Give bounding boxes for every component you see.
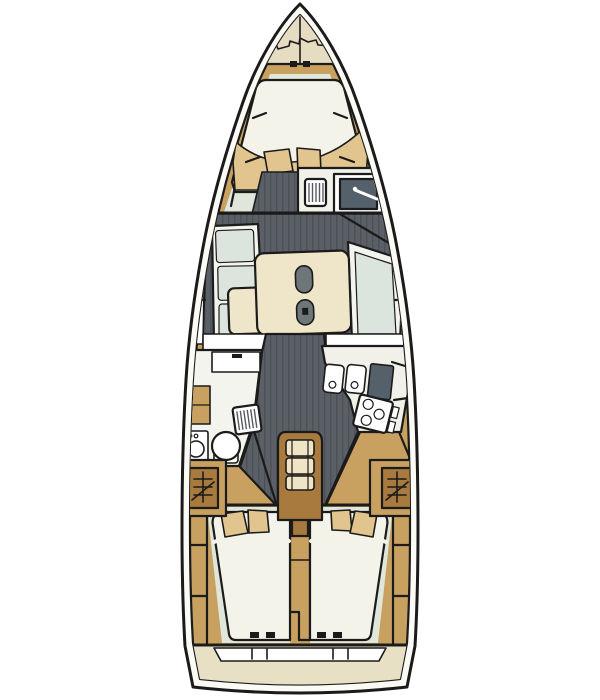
interior [182, 12, 414, 686]
port-cabinet-front [203, 334, 266, 350]
forward-head-grate [305, 179, 326, 206]
yacht-deck-plan [0, 0, 600, 700]
aft-pillow [331, 510, 352, 531]
berth-latch [266, 632, 275, 638]
companionway-steps [278, 432, 322, 536]
sink-drain [329, 381, 336, 388]
berth-latch [250, 632, 259, 638]
step-tread [286, 458, 314, 474]
windlass-fitting [303, 61, 310, 67]
grate-frame [232, 404, 262, 434]
berth-latch [333, 632, 342, 638]
deck-plan-svg [0, 0, 600, 700]
swim-step-band [214, 648, 386, 661]
vanity-faucet [232, 354, 242, 358]
toilet [212, 432, 240, 463]
galley-worktop [367, 364, 393, 400]
v-berth-pillow [264, 149, 293, 174]
sink-basin [340, 179, 377, 209]
sink-drain [351, 381, 358, 388]
step-tread [286, 440, 314, 456]
aft-pillow [248, 510, 269, 533]
starboard-hanging-locker [370, 460, 414, 516]
starboard-cabinet-front [326, 334, 406, 346]
toilet-bowl [212, 432, 240, 460]
galley-sink [345, 364, 367, 394]
cup-holder-insert [302, 308, 308, 315]
forward-passage [252, 168, 390, 214]
settee-cushion [215, 229, 254, 262]
transom [189, 645, 411, 686]
salon [196, 214, 406, 350]
windlass-fitting [290, 61, 297, 67]
cup-holder-capsule [295, 266, 313, 294]
berth-latch [317, 632, 326, 638]
sink-drain [353, 187, 357, 191]
galley-sink [323, 364, 345, 394]
settee-cushion [355, 252, 396, 334]
stove-top [353, 394, 394, 433]
step-tread [286, 476, 314, 490]
shower-grate [232, 404, 262, 434]
washer-knob [194, 434, 198, 438]
